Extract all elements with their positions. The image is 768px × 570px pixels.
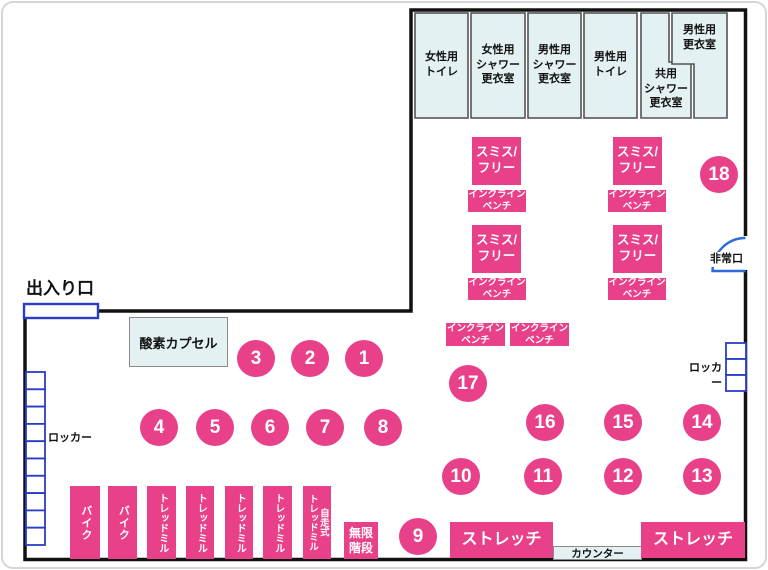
room-label-womens-shower-locker: 女性用 シャワー 更衣室 [471,43,525,87]
station-marker-1: 1 [345,340,383,377]
locker-label-left: ロッカー [48,431,92,446]
entrance-label: 出入り口 [26,278,94,300]
bike-box-2: バイク [108,486,137,559]
treadmill-label: トレッドミル [155,493,168,553]
room-label-mens-locker-room: 男性用 更衣室 [672,23,727,52]
oxygen-capsule-box: 酸素カプセル [129,317,228,367]
incline-bench-box-3: インクライン ベンチ [468,278,526,300]
treadmill-label: トレッドミル [233,493,246,553]
treadmill-box-4: トレッドミル [263,486,292,559]
station-marker-17: 17 [449,365,487,402]
incline-bench-box-1: インクライン ベンチ [468,190,526,212]
bike-box-1: バイク [70,486,100,559]
smith-free-box-2: スミス/ フリー [613,137,662,185]
room-label-shared-shower-locker: 共用 シャワー 更衣室 [641,67,691,111]
treadmill-box-1: トレッドミル [147,486,176,559]
entrance-door [24,304,98,318]
station-marker-7: 7 [306,409,344,446]
stretch-box-1: ストレッチ [450,522,553,558]
incline-bench-box-6: インクライン ベンチ [510,323,569,346]
incline-bench-box-5: インクライン ベンチ [446,323,505,346]
smith-free-box-4: スミス/ フリー [613,225,662,273]
treadmill-box-2: トレッドミル [186,486,214,559]
room-label-mens-shower-locker: 男性用 シャワー 更衣室 [528,43,581,87]
station-marker-13: 13 [683,458,721,495]
station-marker-15: 15 [604,404,642,441]
smith-free-box-1: スミス/ フリー [472,137,521,185]
counter-box: カウンター [553,546,642,560]
bike-label: バイク [116,505,130,541]
station-marker-14: 14 [683,404,721,441]
station-marker-11: 11 [524,458,562,495]
treadmill-label: トレッドミル [271,493,284,553]
station-marker-9: 9 [399,518,437,555]
locker-right-cells [726,343,746,391]
room-label-womens-toilet: 女性用 トイレ [415,50,468,79]
room-label-mens-toilet: 男性用 トイレ [584,50,637,79]
locker-left-cells [26,372,45,545]
stretch-box-2: ストレッチ [641,522,745,558]
station-marker-10: 10 [442,458,480,495]
infinite-stairs-box: 無限 階段 [344,522,378,559]
incline-bench-box-4: インクライン ベンチ [608,278,666,300]
station-marker-12: 12 [604,458,642,495]
emergency-exit-label: 非常口 [709,252,744,267]
smith-free-box-3: スミス/ フリー [472,225,521,273]
station-marker-5: 5 [196,409,234,446]
station-marker-6: 6 [251,409,289,446]
counter-label: カウンター [571,546,624,561]
bike-label: バイク [78,505,92,541]
self-treadmill-label: 自走式 トレッドミル [306,494,328,551]
oxygen-capsule-label: 酸素カプセル [139,333,217,352]
station-marker-4: 4 [140,409,178,446]
gym-floor-plan: 女性用 トイレ 女性用 シャワー 更衣室 男性用 シャワー 更衣室 男性用 トイ… [0,0,768,570]
station-marker-16: 16 [526,404,564,441]
station-marker-8: 8 [364,409,402,446]
treadmill-label: トレッドミル [194,493,207,553]
station-marker-18: 18 [700,156,738,193]
self-treadmill-box: 自走式 トレッドミル [303,486,331,559]
incline-bench-box-2: インクライン ベンチ [608,190,666,212]
station-marker-3: 3 [237,340,275,377]
station-marker-2: 2 [291,340,329,377]
locker-label-right: ロッカー [680,361,722,390]
treadmill-box-3: トレッドミル [225,486,253,559]
